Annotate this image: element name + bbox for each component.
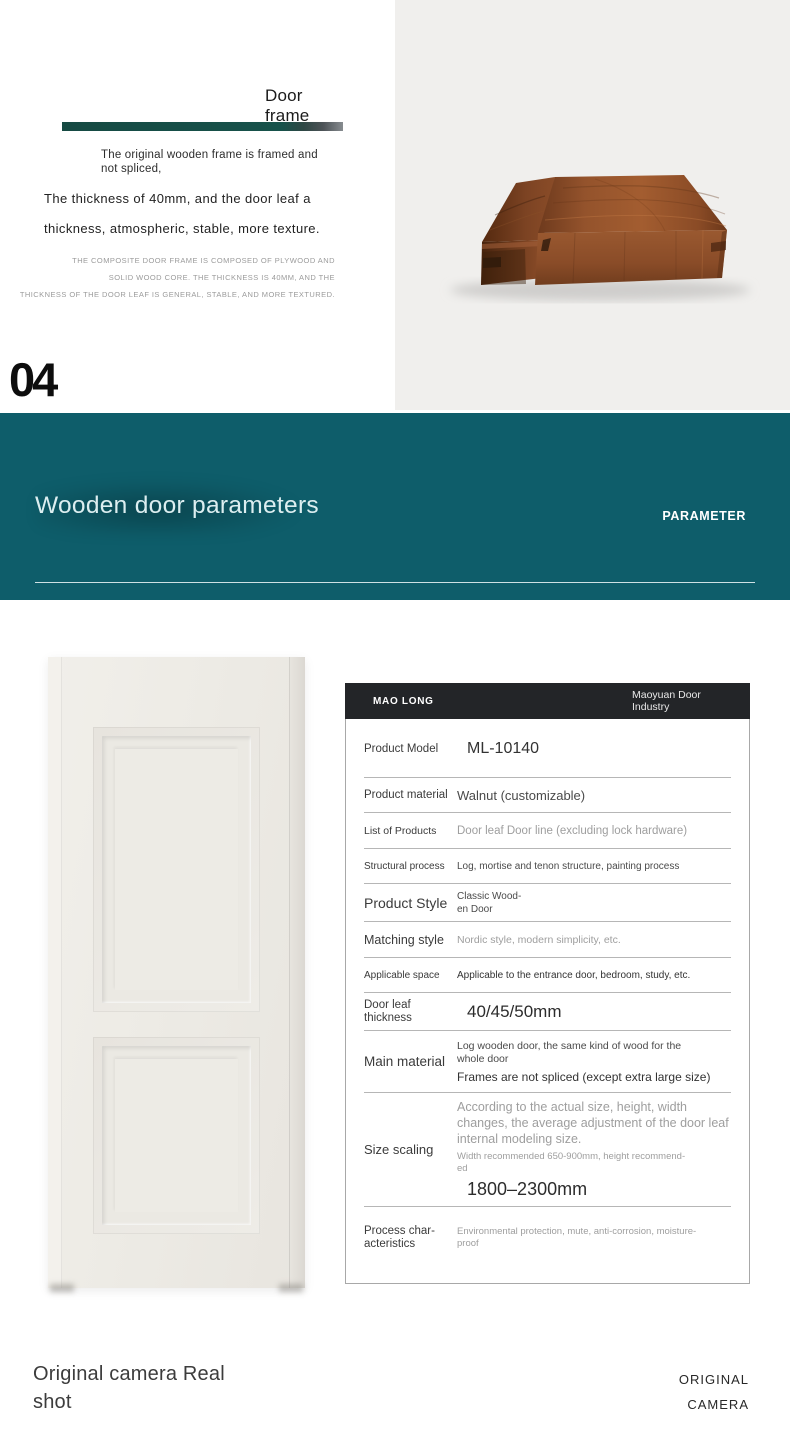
footer-title-line1: Original camera Real — [33, 1361, 225, 1389]
row-value: Log wooden door, the same kind of wood f… — [457, 1034, 731, 1090]
row-value: 40/45/50mm — [457, 1002, 731, 1022]
row-value: Classic Wood- en Door — [457, 890, 731, 916]
wood-frame-photo — [395, 0, 790, 410]
row-value: Applicable to the entrance door, bedroom… — [457, 969, 707, 982]
table-row-applicable-space: Applicable space Applicable to the entra… — [364, 958, 731, 993]
door-photo — [48, 657, 305, 1288]
row-label: Product Model — [364, 743, 457, 755]
intro-lead-paragraph: The original wooden frame is framed and … — [101, 148, 318, 176]
parameters-banner: Wooden door parameters PARAMETER — [0, 413, 790, 600]
row-label: Door leaf thickness — [364, 999, 457, 1025]
table-row-list-of-products: List of Products Door leaf Door line (ex… — [364, 813, 731, 849]
banner-tag: PARAMETER — [662, 509, 746, 523]
table-row-door-leaf-thickness: Door leaf thickness 40/45/50mm — [364, 993, 731, 1031]
row-value-b-line1: Width recommended 650-900mm, height reco… — [457, 1151, 731, 1163]
door-top-panel-core — [115, 749, 238, 990]
door-left-edge — [48, 657, 62, 1288]
footer-title: Original camera Real shot — [33, 1361, 225, 1416]
fineprint-line1: THE COMPOSITE DOOR FRAME IS COMPOSED OF … — [5, 252, 335, 269]
row-label-line1: Door leaf — [364, 999, 457, 1012]
table-row-main-material: Main material Log wooden door, the same … — [364, 1031, 731, 1093]
table-row-product-material: Product material Walnut (customizable) — [364, 778, 731, 813]
row-label: Structural process — [364, 861, 457, 872]
row-value-line1: Classic Wood- — [457, 890, 729, 903]
row-value: According to the actual size, height, wi… — [457, 1093, 731, 1206]
footer-tag-line2: CAMERA — [679, 1392, 749, 1417]
door-top-panel — [93, 727, 260, 1012]
row-value: Walnut (customizable) — [457, 788, 731, 803]
door-bottom-panel-core — [115, 1059, 238, 1212]
row-label-line2: thickness — [364, 1012, 457, 1025]
row-value: ML-10140 — [457, 740, 731, 758]
banner-title: Wooden door parameters — [35, 492, 319, 520]
table-row-product-model: Product Model ML-10140 — [364, 721, 731, 778]
company-line1: Maoyuan Door — [632, 689, 724, 701]
row-value-b: Frames are not spliced (except extra lar… — [457, 1070, 731, 1084]
row-value-b: Width recommended 650-900mm, height reco… — [457, 1151, 731, 1175]
row-label: Applicable space — [364, 970, 457, 981]
door-right-edge — [290, 657, 305, 1288]
table-row-structural-process: Structural process Log, mortise and teno… — [364, 849, 731, 884]
brand-name: MAO LONG — [373, 696, 434, 707]
row-value-c: 1800–2300mm — [457, 1179, 731, 1200]
intro-description-line-b: thickness, atmospheric, stable, more tex… — [44, 221, 320, 236]
footer-title-line2: shot — [33, 1389, 225, 1417]
intro-lead-line1: The original wooden frame is framed and — [101, 148, 318, 162]
footer-tag-line1: ORIGINAL — [679, 1367, 749, 1392]
row-label-line2: acteristics — [364, 1238, 457, 1251]
row-value: Log, mortise and tenon structure, painti… — [457, 860, 697, 873]
intro-heading-line2: frame — [265, 106, 309, 126]
row-value: Environmental protection, mute, anti-cor… — [457, 1226, 707, 1250]
spec-table-header: MAO LONG Maoyuan Door Industry — [345, 683, 750, 719]
company-line2: Industry — [632, 701, 724, 713]
row-value-a: According to the actual size, height, wi… — [457, 1099, 731, 1147]
row-value-a: Log wooden door, the same kind of wood f… — [457, 1040, 697, 1066]
spec-table-body: Product Model ML-10140 Product material … — [345, 719, 750, 1284]
wood-block-illustration — [395, 0, 790, 410]
table-row-matching-style: Matching style Nordic style, modern simp… — [364, 922, 731, 958]
table-row-product-style: Product Style Classic Wood- en Door — [364, 884, 731, 922]
table-row-size-scaling: Size scaling According to the actual siz… — [364, 1093, 731, 1207]
row-value: Door leaf Door line (excluding lock hard… — [457, 825, 731, 837]
row-value-b-line2: ed — [457, 1163, 731, 1175]
intro-description-line-a: The thickness of 40mm, and the door leaf… — [44, 191, 311, 206]
footer-tag: ORIGINAL CAMERA — [679, 1367, 749, 1417]
row-label: Product Style — [364, 895, 457, 911]
banner-divider-line — [35, 582, 755, 583]
intro-heading-line1: Door — [265, 86, 309, 106]
intro-fineprint: THE COMPOSITE DOOR FRAME IS COMPOSED OF … — [5, 252, 335, 303]
door-bottom-panel — [93, 1037, 260, 1234]
row-label-line1: Process char- — [364, 1225, 457, 1238]
intro-lead-line2: not spliced, — [101, 162, 318, 176]
row-value: Nordic style, modern simplicity, etc. — [457, 934, 731, 946]
section-number: 04 — [9, 352, 55, 407]
door-shadow-left — [50, 1284, 74, 1292]
intro-heading: Door frame — [265, 86, 309, 126]
fineprint-line2: SOLID WOOD CORE. THE THICKNESS IS 40MM, … — [5, 269, 335, 286]
row-label: Process char- acteristics — [364, 1225, 457, 1251]
company-name: Maoyuan Door Industry — [632, 689, 724, 713]
door-right-edge-line — [289, 657, 290, 1288]
row-value-line2: en Door — [457, 903, 729, 916]
row-label: Size scaling — [364, 1142, 457, 1157]
row-label: Matching style — [364, 933, 457, 947]
fineprint-line3: THICKNESS OF THE DOOR LEAF IS GENERAL, S… — [5, 286, 335, 303]
row-label: List of Products — [364, 825, 457, 837]
product-detail-page: Door frame The original wooden frame is … — [0, 0, 790, 1454]
door-shadow-right — [279, 1284, 303, 1292]
table-row-process-characteristics: Process char- acteristics Environmental … — [364, 1207, 731, 1269]
row-label: Product material — [364, 789, 457, 801]
spec-table: MAO LONG Maoyuan Door Industry Product M… — [345, 683, 750, 1284]
row-label: Main material — [364, 1054, 457, 1069]
